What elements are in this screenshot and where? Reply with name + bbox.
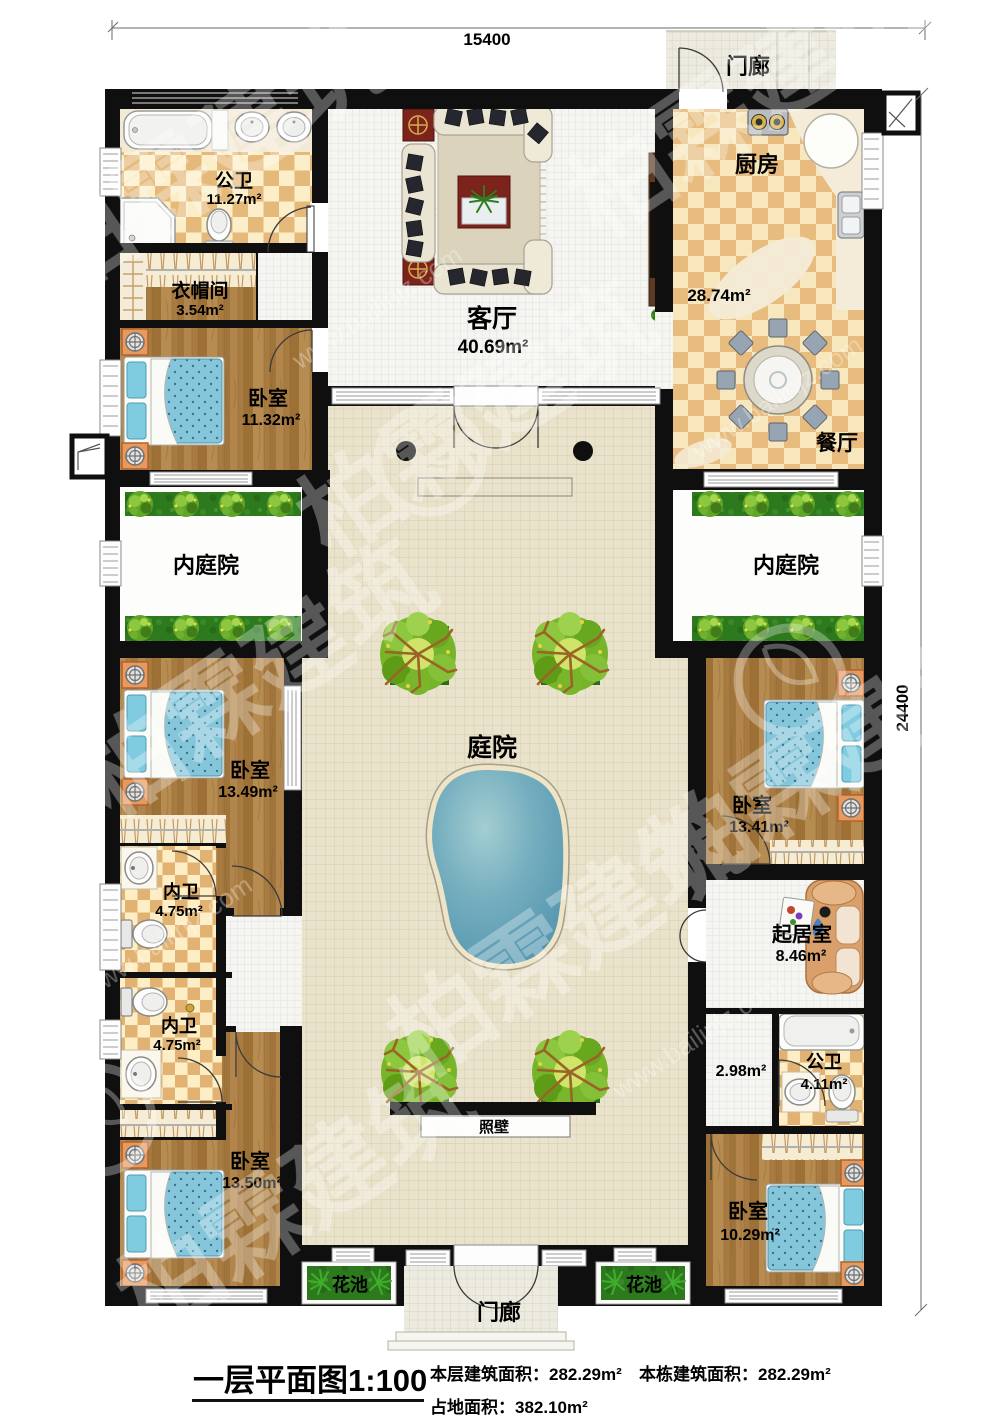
- svg-text:3.54m²: 3.54m²: [176, 302, 224, 319]
- svg-text:11.32m²: 11.32m²: [242, 412, 301, 429]
- svg-text:内庭院: 内庭院: [173, 553, 239, 578]
- svg-text:卧室: 卧室: [248, 386, 288, 410]
- svg-text:衣帽间: 衣帽间: [171, 279, 228, 302]
- svg-text:4.11m²: 4.11m²: [801, 1076, 848, 1093]
- svg-text:10.29m²: 10.29m²: [720, 1227, 780, 1244]
- svg-text:本栋建筑面积：282.29m²: 本栋建筑面积：282.29m²: [639, 1364, 831, 1384]
- svg-text:一层平面图1:100: 一层平面图1:100: [193, 1363, 427, 1398]
- svg-text:庭院: 庭院: [467, 733, 517, 762]
- svg-text:15400: 15400: [463, 30, 510, 49]
- svg-text:花池: 花池: [626, 1274, 662, 1295]
- svg-text:卧室: 卧室: [230, 758, 270, 782]
- svg-text:8.46m²: 8.46m²: [776, 948, 827, 965]
- svg-text:本层建筑面积：282.29m²: 本层建筑面积：282.29m²: [430, 1364, 622, 1384]
- svg-text:占地面积：382.10m²: 占地面积：382.10m²: [430, 1397, 588, 1416]
- svg-text:公卫: 公卫: [806, 1052, 842, 1072]
- svg-text:2.98m²: 2.98m²: [716, 1063, 767, 1080]
- svg-text:起居室: 起居室: [771, 922, 832, 946]
- svg-text:内卫: 内卫: [161, 1015, 197, 1036]
- svg-text:卧室: 卧室: [728, 1199, 768, 1223]
- svg-text:13.49m²: 13.49m²: [218, 784, 278, 801]
- svg-text:4.75m²: 4.75m²: [153, 1037, 201, 1054]
- svg-text:花池: 花池: [332, 1274, 368, 1295]
- svg-text:内卫: 内卫: [163, 881, 199, 902]
- svg-text:28.74m²: 28.74m²: [687, 286, 751, 305]
- svg-text:内庭院: 内庭院: [753, 553, 819, 578]
- svg-text:客厅: 客厅: [467, 304, 517, 333]
- svg-text:餐厅: 餐厅: [816, 431, 858, 455]
- svg-text:门廊: 门廊: [477, 1300, 521, 1325]
